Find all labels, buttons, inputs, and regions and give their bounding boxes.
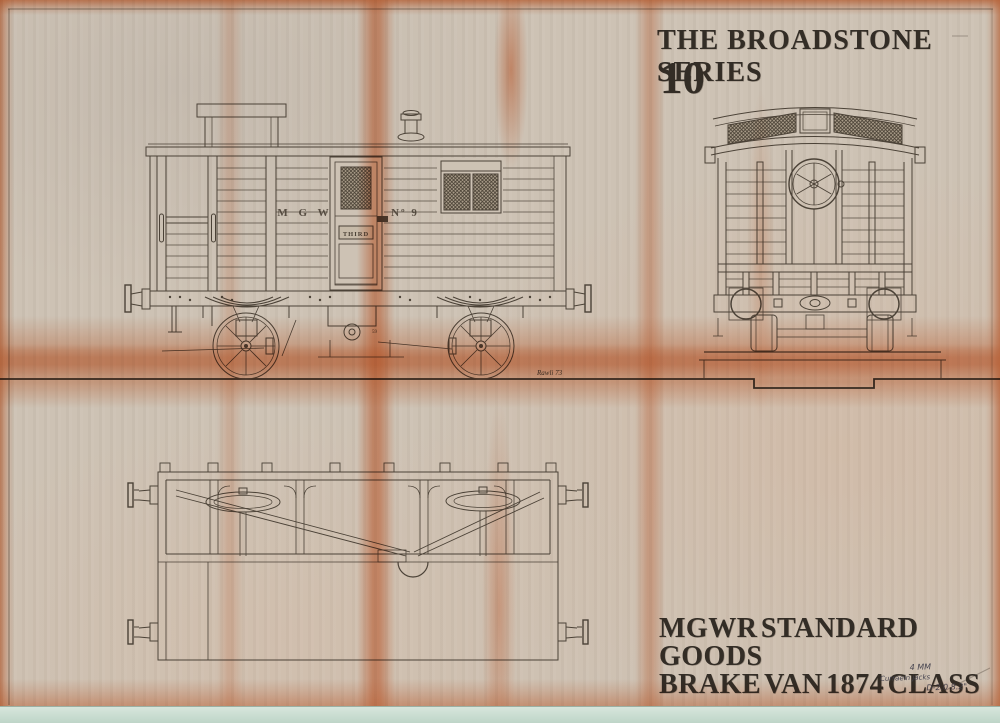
series-number: 10 [660, 52, 705, 104]
part-number-label: 59 [372, 330, 378, 335]
backing-strip [0, 706, 1000, 723]
underframe-plan-drawing [128, 463, 588, 660]
side-elevation-drawing: M G W Nº 9 THIRD 59 Rawli 73 [125, 104, 591, 379]
series-title: THE BROADSTONE SERIES [657, 25, 1000, 89]
body-running-number: Nº 9 [391, 207, 419, 219]
drawing-sheet: M G W Nº 9 THIRD 59 Rawli 73 [0, 0, 1000, 723]
sheet-border-lines [8, 9, 993, 705]
scale-note: 4 MM [909, 660, 994, 672]
side-wheel-left [213, 313, 279, 379]
handwritten-notes: 4 MM Curraein jacks D-2.0 8.2" [880, 660, 996, 694]
draughtsman-signature: Rawli 73 [536, 369, 563, 377]
plan-wheel-left [206, 488, 280, 556]
door-class-label: THIRD [343, 231, 369, 238]
end-elevation-drawing [699, 108, 946, 380]
side-wheel-right [448, 313, 514, 379]
pencil-marks [946, 36, 990, 690]
plan-wheel-right [446, 487, 520, 556]
ground-line [0, 379, 1000, 388]
body-owner-initials: M G W [277, 207, 332, 219]
